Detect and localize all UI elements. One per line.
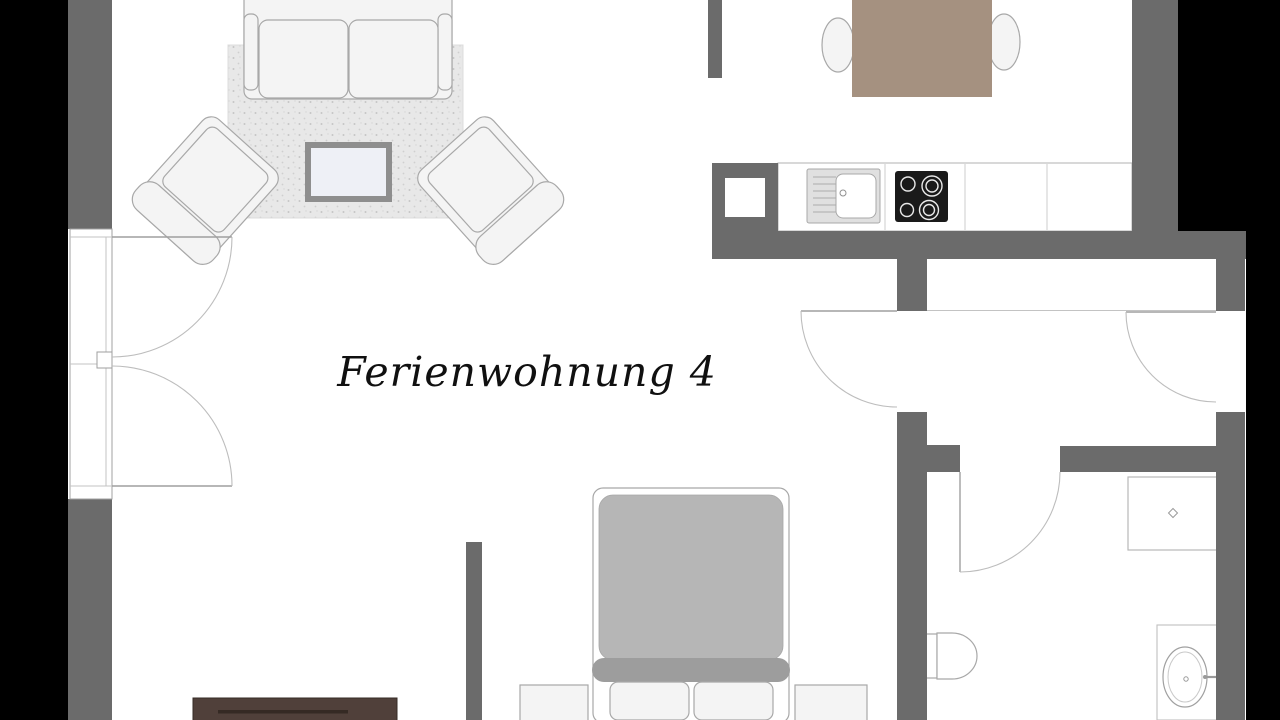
- wall-partition-bedroom: [466, 542, 482, 720]
- double-bed: [592, 488, 790, 720]
- sofa-cushion-left: [259, 20, 348, 98]
- wall-right-entrance-top: [1216, 259, 1245, 311]
- tv-sideboard: [193, 698, 397, 720]
- wall-right-upper: [1132, 0, 1178, 231]
- cooktop: [895, 171, 948, 222]
- floor-plan-canvas: Ferienwohnung 4: [0, 0, 1280, 720]
- kitchen-sink: [807, 169, 880, 223]
- toilet: [925, 633, 977, 679]
- sofa-cushion-right: [349, 20, 438, 98]
- sofa-armrest-right: [438, 14, 452, 90]
- wall-kitchen-south: [712, 231, 1246, 259]
- sink-faucet-icon: [840, 190, 846, 196]
- dining-chair-right: [988, 14, 1020, 70]
- wall-hall-west: [897, 412, 927, 720]
- wall-bath-jog: [927, 445, 960, 472]
- nightstand-right: [795, 685, 867, 720]
- pillow-left: [610, 682, 689, 720]
- two-seat-sofa: [244, 0, 452, 99]
- wall-left-lower: [68, 499, 112, 720]
- washbasin-vanity: [1157, 625, 1217, 720]
- nightstand-left: [520, 685, 588, 720]
- wall-left-upper: [68, 0, 112, 229]
- letterbox-top-right: [1178, 0, 1280, 231]
- door-astragal: [97, 352, 112, 368]
- sofa-armrest-left: [244, 14, 258, 90]
- pillow-right: [694, 682, 773, 720]
- dining-chair-left: [822, 18, 854, 72]
- bed-blanket-roll: [592, 658, 790, 682]
- apartment-title: Ferienwohnung 4: [336, 348, 717, 396]
- bed-duvet: [599, 495, 783, 660]
- shower: [1128, 477, 1217, 550]
- dining-table: [852, 0, 992, 97]
- wall-divider-top: [708, 0, 722, 78]
- wall-opening-jamb: [897, 259, 927, 311]
- floor-plan: Ferienwohnung 4: [0, 0, 1280, 720]
- kitchen-block-window: [725, 178, 765, 217]
- coffee-table: [305, 142, 392, 202]
- wall-bathroom-north: [1060, 446, 1223, 472]
